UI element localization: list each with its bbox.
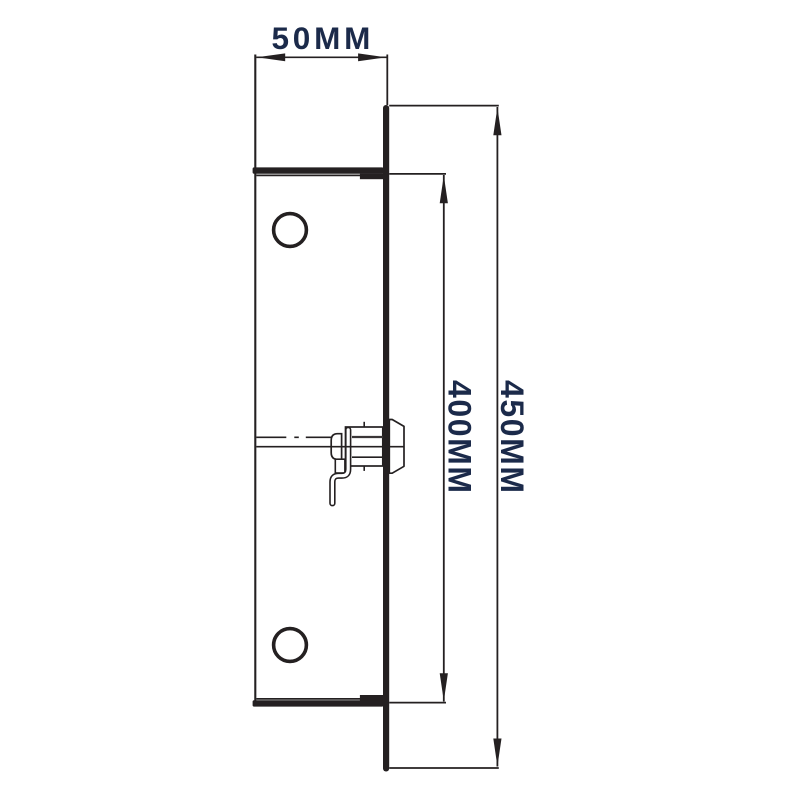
- svg-text:50MM: 50MM: [271, 20, 374, 56]
- svg-text:400MM: 400MM: [442, 380, 478, 495]
- svg-text:450MM: 450MM: [494, 380, 530, 495]
